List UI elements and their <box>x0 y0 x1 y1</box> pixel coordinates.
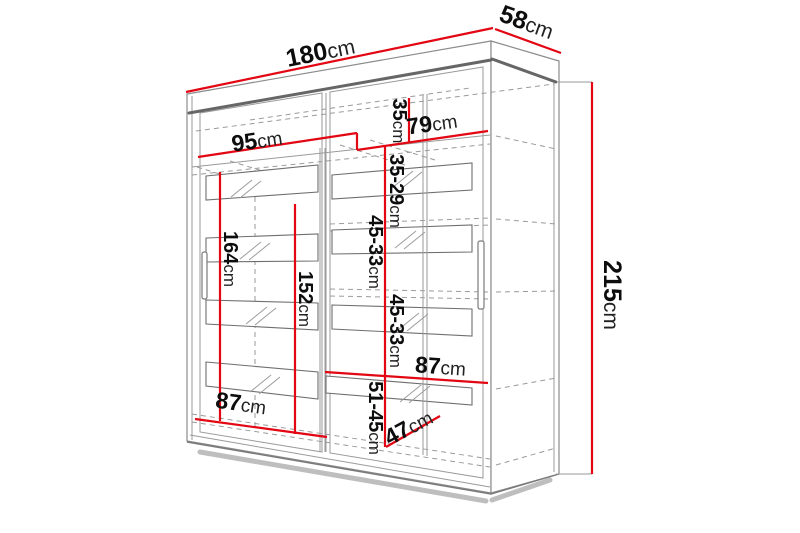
right-door-handle <box>478 241 484 309</box>
wardrobe-dimension-diagram: 180cm 58cm 215cm 95cm 79cm 35cm 35-29cm … <box>0 0 800 533</box>
dim-label-total-depth: 58cm <box>496 0 558 45</box>
dim-label-left-inner-height: 164cm <box>219 231 241 287</box>
diagram-canvas: 180cm 58cm 215cm 95cm 79cm 35cm 35-29cm … <box>0 0 800 533</box>
right-side-panel <box>491 41 559 493</box>
mirror-strip <box>332 225 472 254</box>
dim-label-gap-45-33-b: 45-33cm <box>385 294 407 368</box>
dim-label-gap-51-45: 51-45cm <box>364 381 386 455</box>
left-door-handle <box>202 252 207 299</box>
dim-label-total-height: 215cm <box>598 260 626 330</box>
dim-label-top-gap: 35cm <box>388 99 410 144</box>
dim-label-middle-inner-height: 152cm <box>294 271 316 327</box>
dim-label-gap-45-33-a: 45-33cm <box>364 215 386 289</box>
dim-label-gap-35-29: 35-29cm <box>385 154 407 228</box>
